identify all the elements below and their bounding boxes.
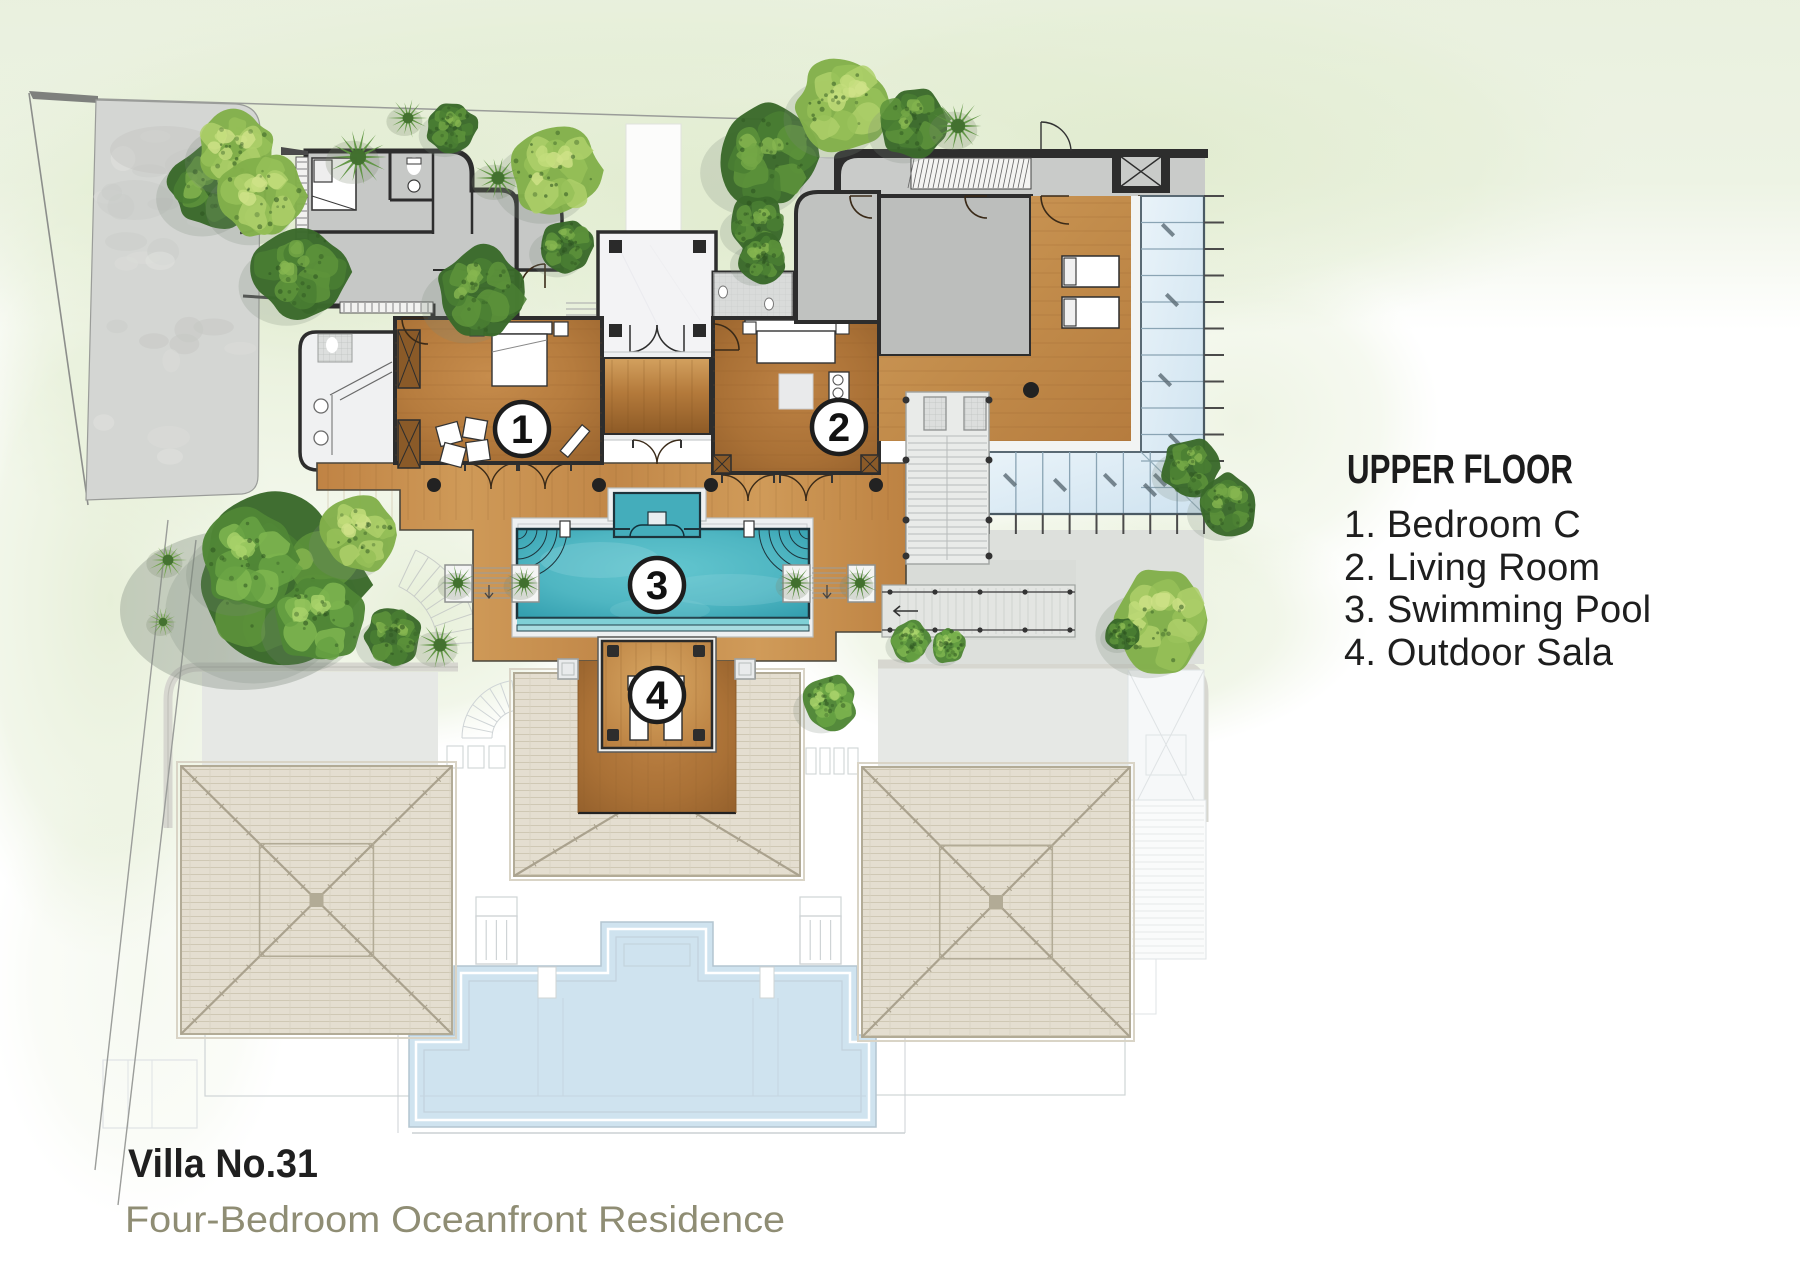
svg-text:3. Swimming Pool: 3. Swimming Pool xyxy=(1344,589,1651,631)
svg-text:2: 2 xyxy=(828,406,850,450)
svg-text:1. Bedroom C: 1. Bedroom C xyxy=(1344,504,1581,546)
svg-text:Villa No.31: Villa No.31 xyxy=(128,1142,318,1186)
svg-text:2. Living Room: 2. Living Room xyxy=(1344,547,1600,589)
svg-text:3: 3 xyxy=(646,564,668,608)
svg-text:UPPER FLOOR: UPPER FLOOR xyxy=(1347,446,1573,492)
svg-text:4: 4 xyxy=(646,674,669,718)
svg-text:1: 1 xyxy=(511,408,533,452)
svg-text:4. Outdoor Sala: 4. Outdoor Sala xyxy=(1344,632,1614,674)
svg-text:Four-Bedroom Oceanfront Reside: Four-Bedroom Oceanfront Residence xyxy=(125,1199,785,1240)
